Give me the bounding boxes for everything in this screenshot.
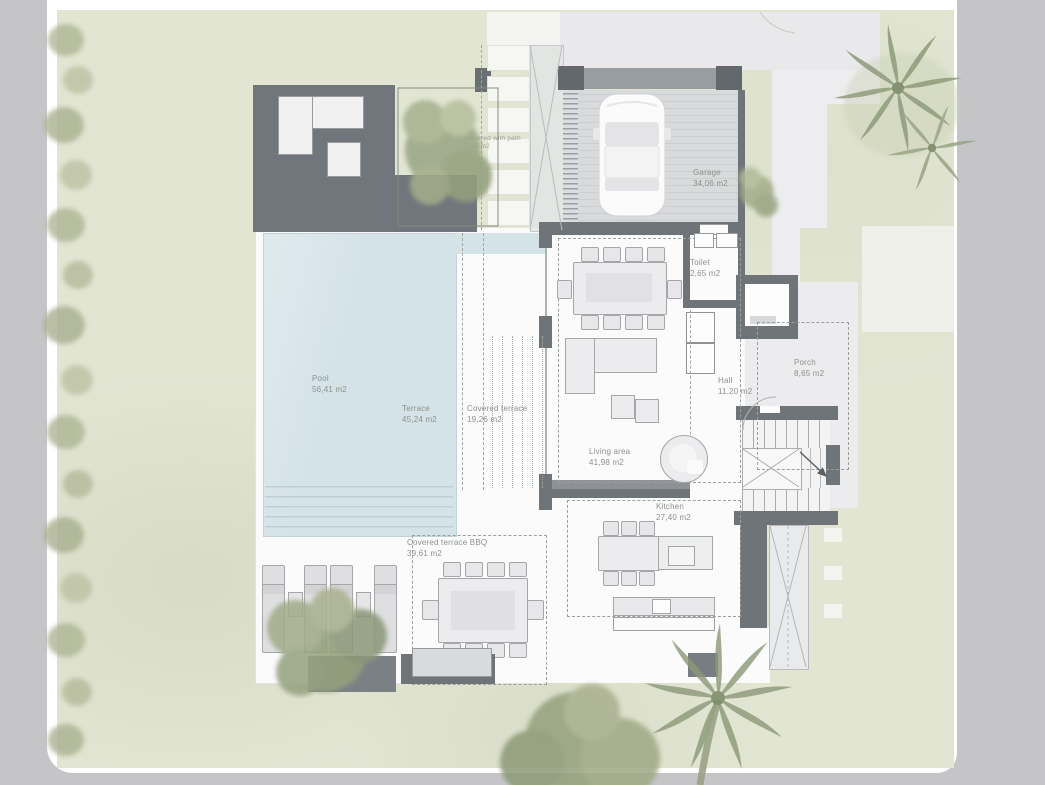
garden-bench-seat — [412, 648, 492, 677]
chair — [647, 247, 665, 262]
stepping-stone — [487, 200, 530, 226]
chair — [581, 315, 599, 330]
porch-label: Porch 8,65 m2 — [794, 357, 824, 379]
room-area: 27,40 m2 — [656, 512, 691, 523]
swivel-chair-notch — [687, 460, 703, 474]
pool-channel — [455, 233, 545, 254]
dining-table — [573, 262, 667, 315]
sun-lounger — [262, 565, 285, 653]
chair — [581, 247, 599, 262]
louver-screen — [563, 88, 578, 228]
slatted-panel — [769, 525, 809, 670]
covered-terrace-edge-2 — [483, 233, 484, 490]
side-pad-3 — [824, 604, 842, 618]
chair — [625, 315, 643, 330]
room-name: Pool — [312, 373, 347, 384]
kitchen-window-counter — [613, 617, 715, 631]
sun-lounger — [330, 565, 353, 653]
stair-treads-bottom — [742, 488, 830, 513]
dining-table-top — [586, 273, 652, 302]
covered-terrace-bbq-label: Covered terrace BBQ 39,61 m2 — [407, 537, 487, 559]
chair — [603, 315, 621, 330]
kitchen-label: Kitchen 27,40 m2 — [656, 501, 691, 523]
chair — [422, 600, 439, 620]
sun-lounger — [304, 565, 327, 653]
room-name: Garage — [693, 167, 728, 178]
chair — [621, 571, 637, 586]
porch-zone-dashed — [757, 322, 849, 470]
pouf — [611, 395, 635, 419]
living-sofa-chaise — [565, 338, 595, 394]
west-glazing-1 — [545, 248, 547, 316]
pool-label: Pool 56,41 m2 — [312, 373, 347, 395]
room-name: Covered terrace BBQ — [407, 537, 487, 548]
room-area: 34,06 m2 — [693, 178, 728, 189]
chair — [465, 562, 483, 577]
chair — [625, 247, 643, 262]
side-pad-2 — [824, 566, 842, 580]
utility-pad — [688, 653, 718, 677]
entry-path-top — [487, 12, 560, 45]
driveway-top — [560, 12, 880, 70]
room-area: 41,98 m2 — [589, 457, 630, 468]
driveway-right — [772, 104, 827, 228]
side-pad-1 — [824, 528, 842, 542]
chair — [443, 562, 461, 577]
stepping-stone — [487, 45, 530, 71]
garage-top-beam — [560, 68, 742, 89]
pouf — [635, 399, 659, 423]
west-wall-pier-1 — [539, 222, 552, 248]
room-name: Porch — [794, 357, 824, 368]
pergola-slat-line — [542, 336, 543, 488]
swivel-chair — [660, 435, 708, 483]
chair — [509, 562, 527, 577]
floor-plan-canvas: Covered with path 7,16 m2 Garage 34,06 m… — [0, 0, 1045, 785]
lounger-side-table — [356, 592, 371, 617]
car-top-view — [593, 92, 671, 218]
chair — [487, 562, 505, 577]
side-apron — [862, 226, 954, 332]
room-area: 39,61 m2 — [407, 548, 487, 559]
room-name: Toilet — [690, 257, 720, 268]
chair — [647, 315, 665, 330]
toilet-wc — [716, 233, 738, 248]
chair — [603, 571, 619, 586]
chair — [667, 280, 682, 299]
garage-pillar-left — [558, 66, 584, 90]
west-glazing-2 — [545, 348, 547, 474]
lounger-side-table — [288, 592, 303, 617]
outdoor-dining-table — [438, 578, 528, 643]
room-area: 2,65 m2 — [690, 268, 720, 279]
covered-terrace-label: Covered terrace 19,26 m2 — [467, 403, 527, 425]
southeast-wall — [740, 518, 767, 628]
room-area: 11,20 m2 — [718, 386, 752, 397]
chair — [557, 280, 572, 299]
chair — [639, 521, 655, 536]
room-name: Terrace — [402, 403, 437, 414]
room-area: 19,26 m2 — [467, 414, 527, 425]
room-name: Living area — [589, 446, 630, 457]
room-name: Hall — [718, 375, 752, 386]
driveway-right-upper — [772, 70, 880, 104]
covered-terrace-edge-1 — [462, 233, 463, 490]
stepping-stone — [487, 76, 530, 102]
stepping-stone — [487, 169, 530, 195]
deck-sofa-chaise — [278, 96, 313, 155]
kitchen-sink — [652, 599, 671, 614]
garage-east-wall — [738, 90, 745, 228]
west-wall-pier-3 — [539, 474, 552, 510]
cooktop — [668, 546, 695, 566]
sun-deck-extension — [395, 175, 477, 232]
west-wall-pier-2 — [539, 316, 552, 348]
room-name: Kitchen — [656, 501, 691, 512]
terrace-label: Terrace 45,24 m2 — [402, 403, 437, 425]
room-area: 56,41 m2 — [312, 384, 347, 395]
covered-path-label: Covered with path 7,16 m2 — [465, 135, 521, 152]
deck-ottoman — [327, 142, 361, 177]
chair — [621, 521, 637, 536]
chair — [603, 521, 619, 536]
pergola-slat-line — [532, 336, 533, 488]
chair — [603, 247, 621, 262]
chair — [639, 571, 655, 586]
chair — [527, 600, 544, 620]
room-name: Covered terrace — [467, 403, 527, 414]
stepping-stone — [487, 107, 530, 133]
hall-label: Hall 11,20 m2 — [718, 375, 752, 397]
garage-pillar-right — [716, 66, 742, 90]
room-name: Covered with path — [465, 135, 521, 143]
room-area: 7,16 m2 — [465, 143, 521, 151]
room-area: 45,24 m2 — [402, 414, 437, 425]
outdoor-table-top — [451, 591, 515, 630]
pool-steps — [265, 486, 453, 534]
toilet-sink — [694, 233, 714, 248]
garage-label: Garage 34,06 m2 — [693, 167, 728, 189]
living-area-label: Living area 41,98 m2 — [589, 446, 630, 468]
room-area: 8,65 m2 — [794, 368, 824, 379]
terrace-se-strip — [745, 627, 770, 683]
toilet-label: Toilet 2,65 m2 — [690, 257, 720, 279]
sun-lounger — [374, 565, 397, 653]
chair — [509, 643, 527, 658]
kitchen-table — [598, 536, 660, 571]
